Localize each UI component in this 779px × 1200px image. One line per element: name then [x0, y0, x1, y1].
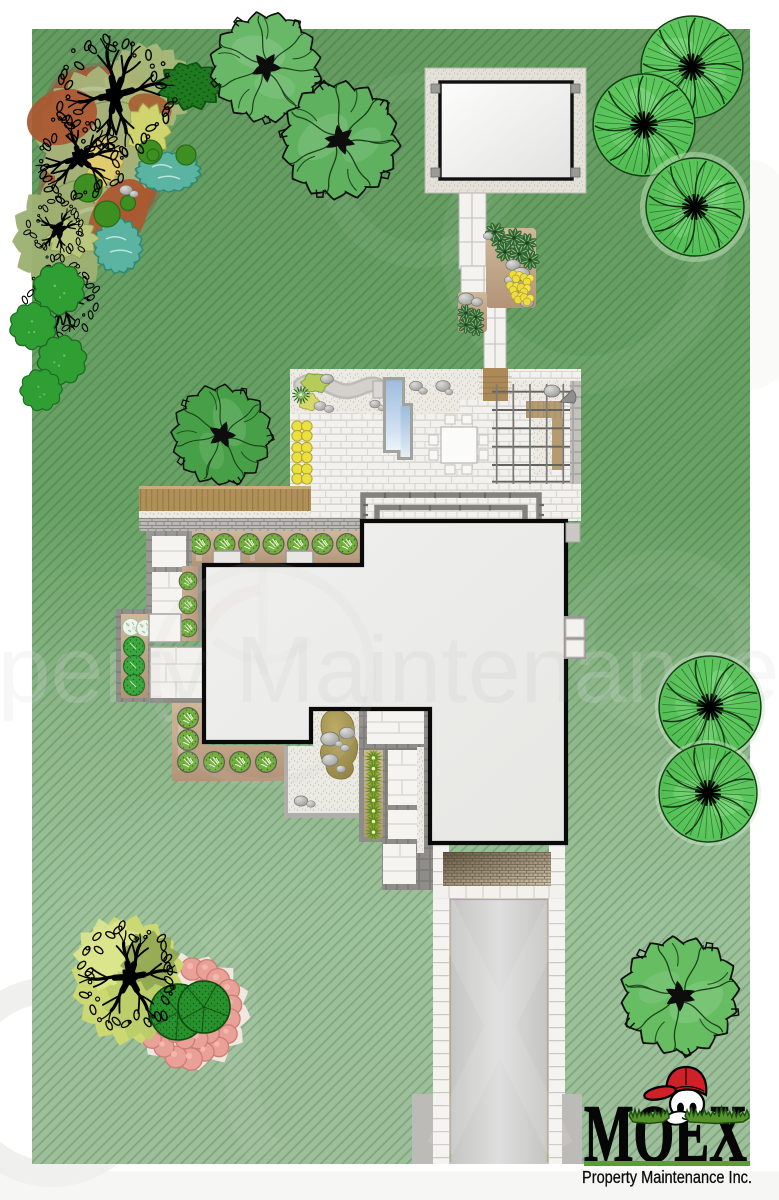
svg-text:Property Maintenance: Property Maintenance [0, 617, 779, 723]
svg-text:Property Maintenance Inc.: Property Maintenance Inc. [582, 1167, 752, 1187]
